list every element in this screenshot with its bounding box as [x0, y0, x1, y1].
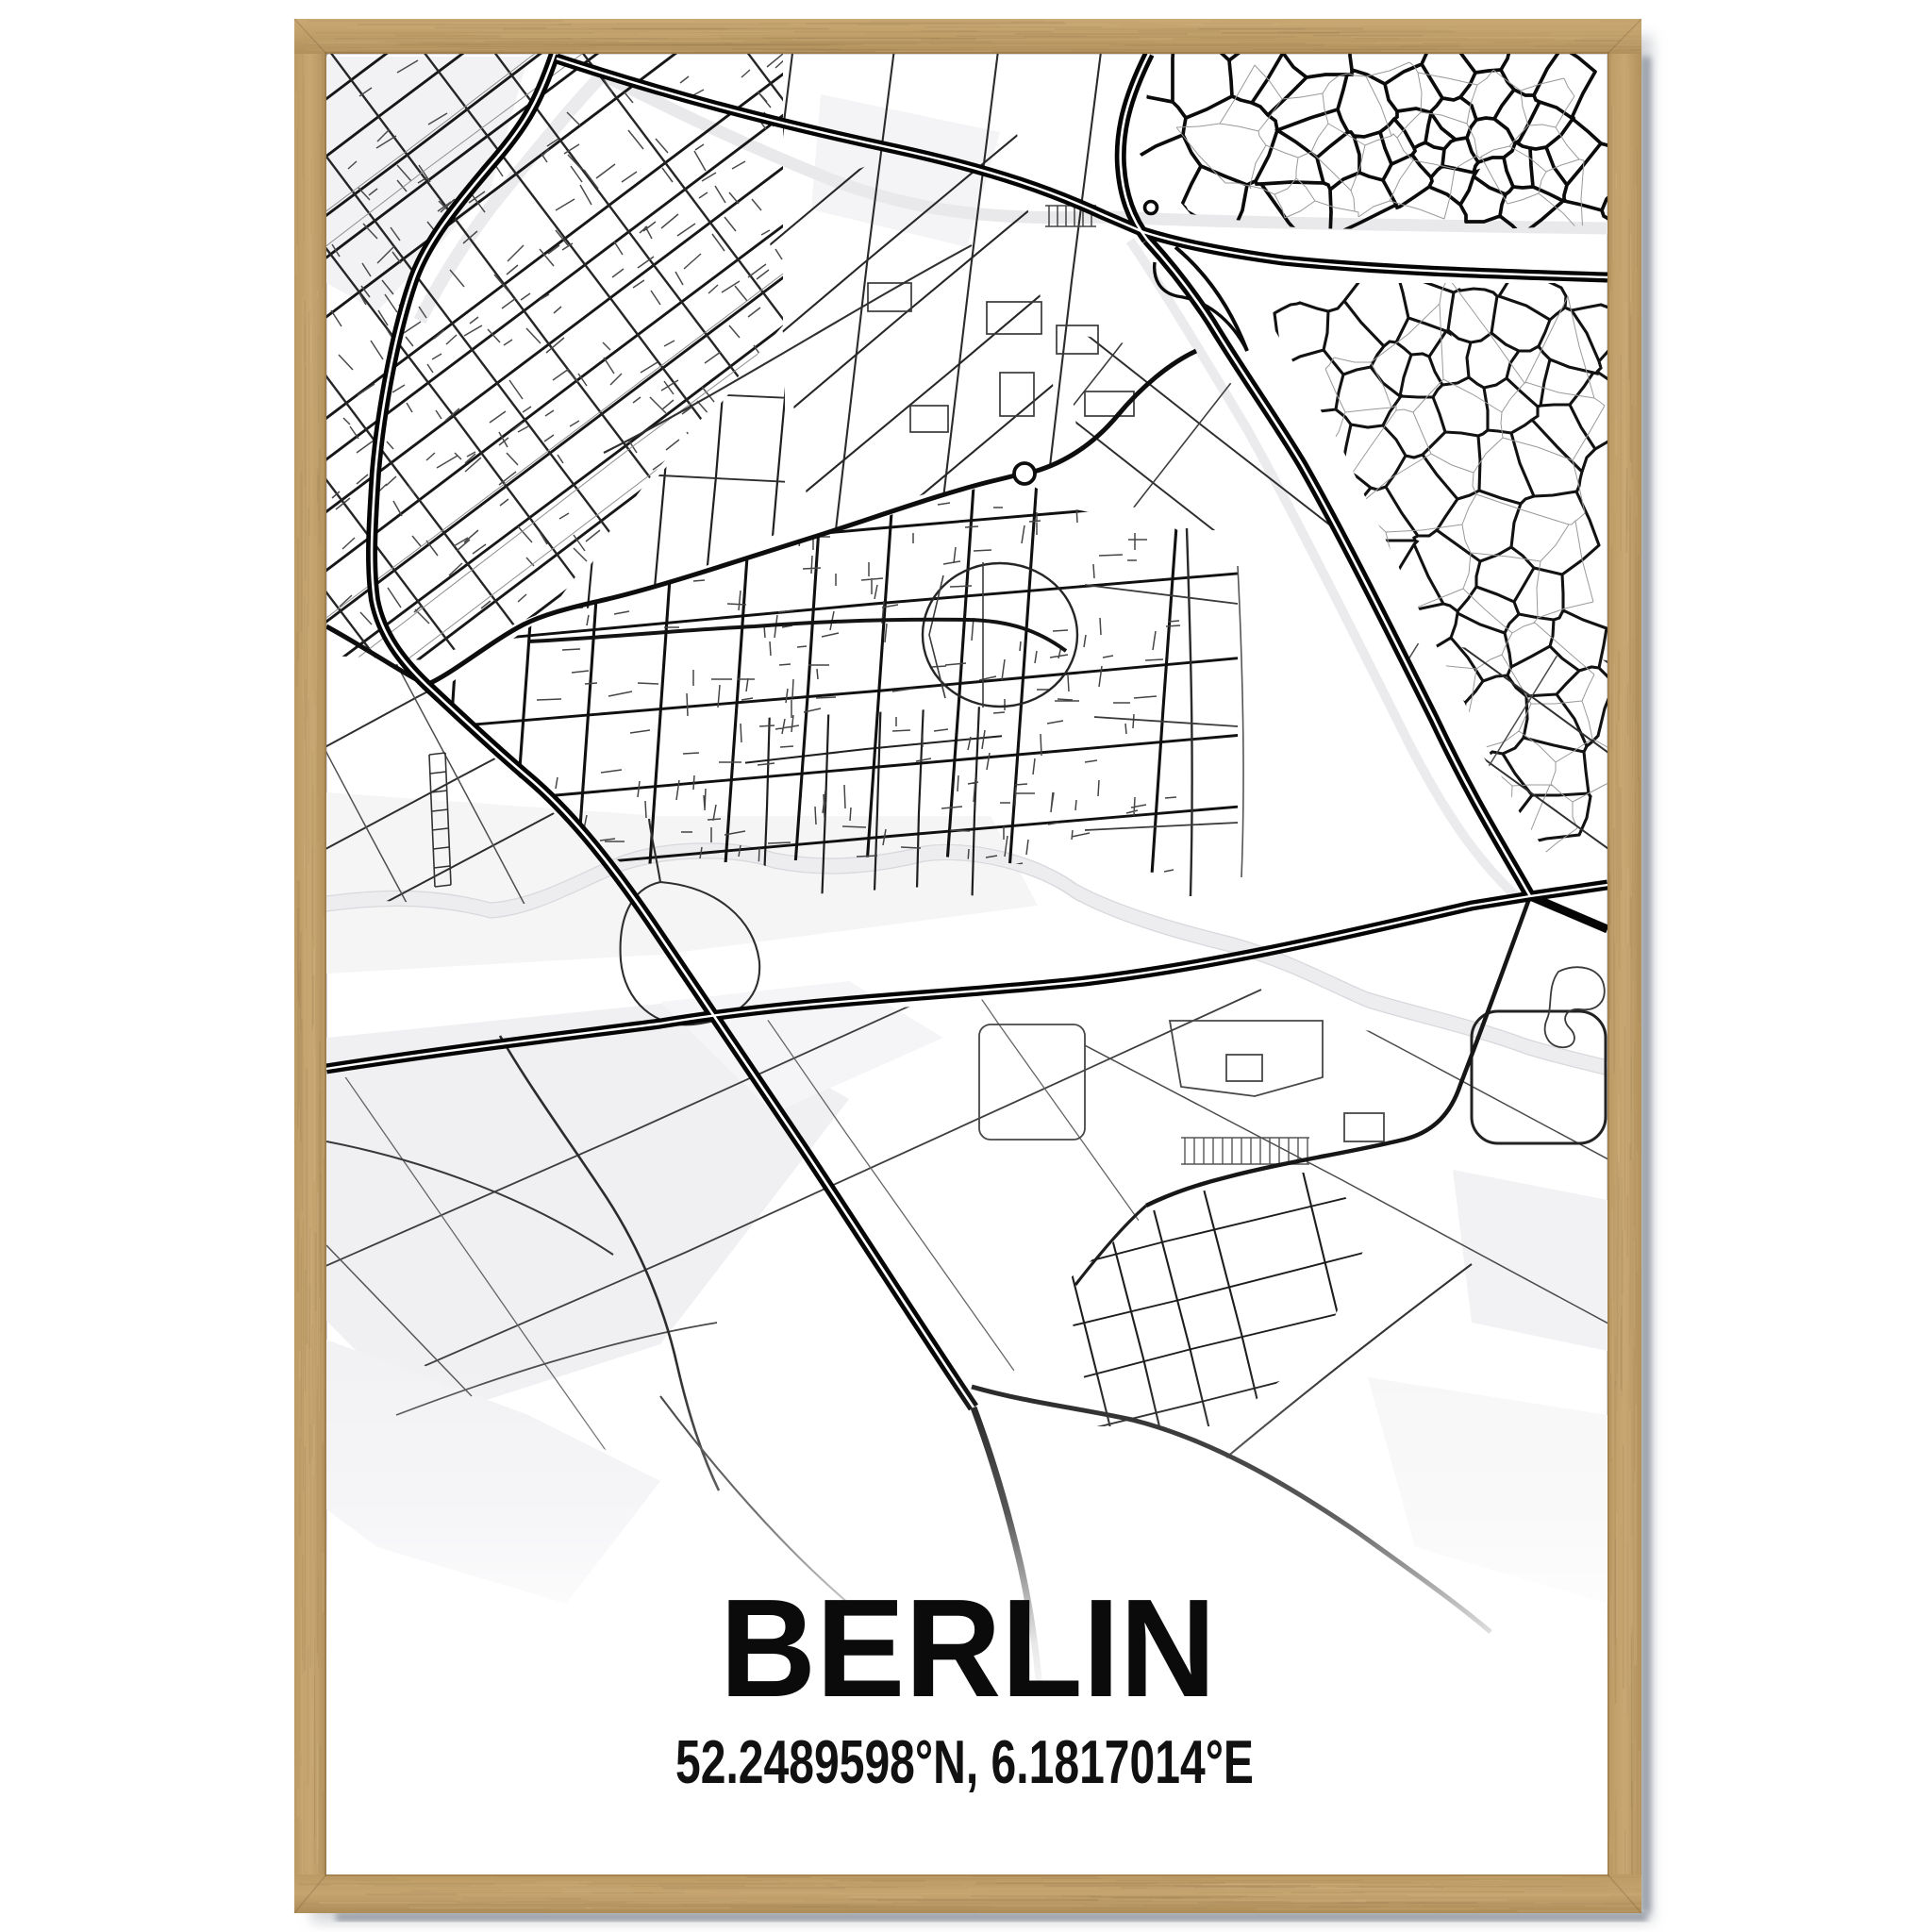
svg-text:BERLIN: BERLIN — [720, 1571, 1216, 1726]
svg-text:52.2489598°N, 6.1817014°E: 52.2489598°N, 6.1817014°E — [675, 1727, 1254, 1796]
